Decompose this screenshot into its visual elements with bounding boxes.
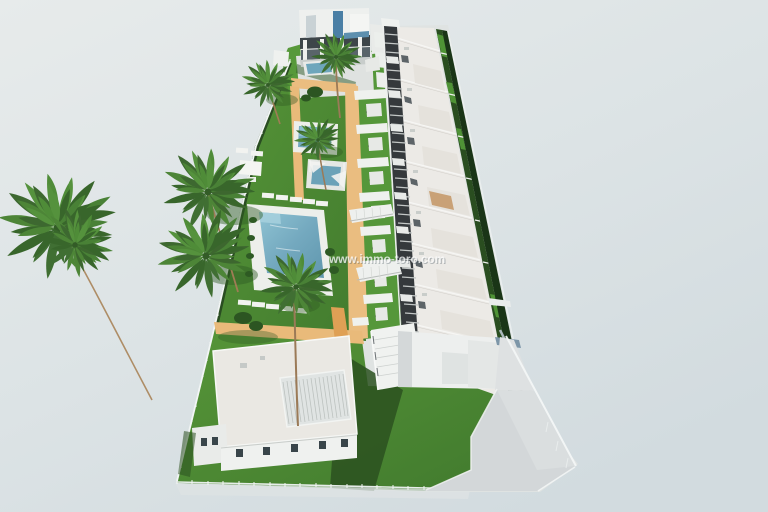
svg-text:www.immo-toro.com: www.immo-toro.com — [328, 252, 445, 266]
